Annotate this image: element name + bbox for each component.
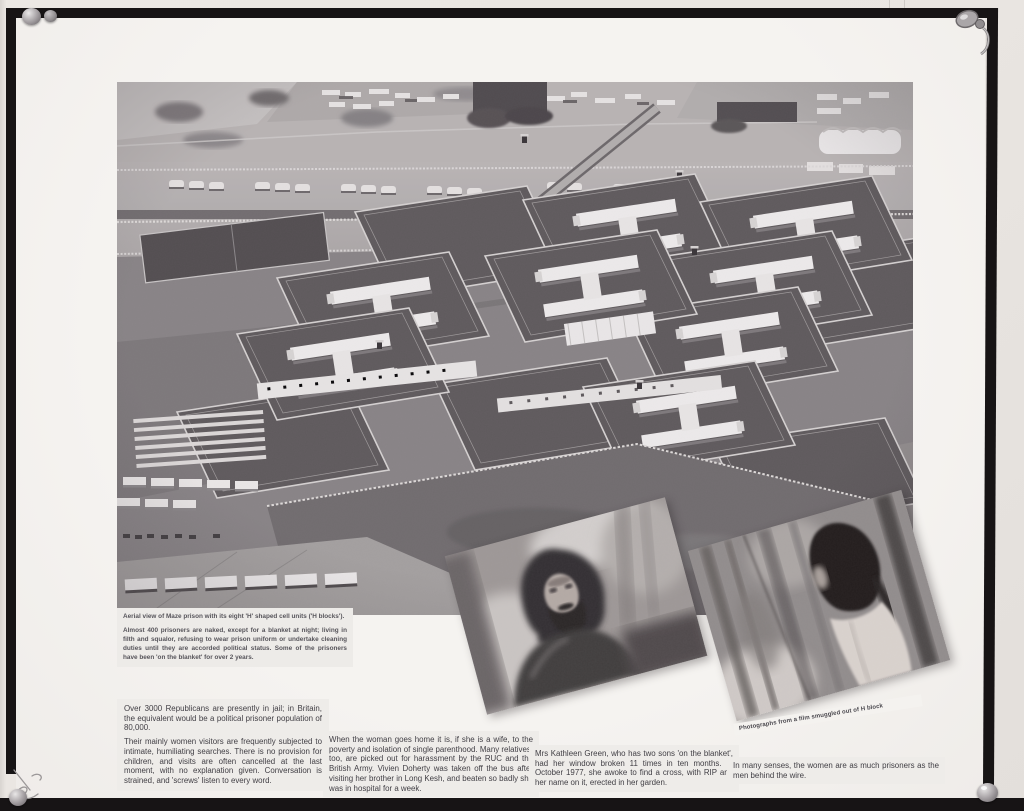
frame-top-bar xyxy=(6,8,993,18)
frame-bolt-icon xyxy=(44,10,57,22)
paragraph-going-home: When the woman goes home it is, if she i… xyxy=(329,735,533,793)
frame-left-bar xyxy=(6,8,16,774)
hanging-clip-icon xyxy=(950,4,1008,60)
frame-bolt-icon xyxy=(977,783,998,802)
paragraph-kathleen-green: Mrs Kathleen Green, who has two sons 'on… xyxy=(535,749,733,788)
frame-bolt-icon xyxy=(22,8,41,25)
paragraph-republicans: Over 3000 Republicans are presently in j… xyxy=(124,704,322,733)
frame-bottom-bar xyxy=(0,798,1024,811)
frame-right-bar xyxy=(983,8,998,799)
text-block-jail-population: Over 3000 Republicans are presently in j… xyxy=(117,699,329,791)
photographed-exhibition-panel: { "captions": { "aerial": { "title": "Ae… xyxy=(0,0,1024,811)
text-block-women-prisoners: In many senses, the women are as much pr… xyxy=(727,757,945,784)
text-block-kathleen-green: Mrs Kathleen Green, who has two sons 'on… xyxy=(529,745,739,792)
paragraph-visitors: Their mainly women visitors are frequent… xyxy=(124,737,322,786)
paragraph-women-prisoners: In many senses, the women are as much pr… xyxy=(733,761,939,780)
text-block-going-home: When the woman goes home it is, if she i… xyxy=(323,731,539,797)
aerial-caption-block: Aerial view of Maze prison with its eigh… xyxy=(117,608,353,667)
blanket-protest-note: Almost 400 prisoners are naked, except f… xyxy=(123,626,347,662)
frame-bolt-icon xyxy=(9,789,27,806)
aerial-caption: Aerial view of Maze prison with its eigh… xyxy=(123,612,347,621)
